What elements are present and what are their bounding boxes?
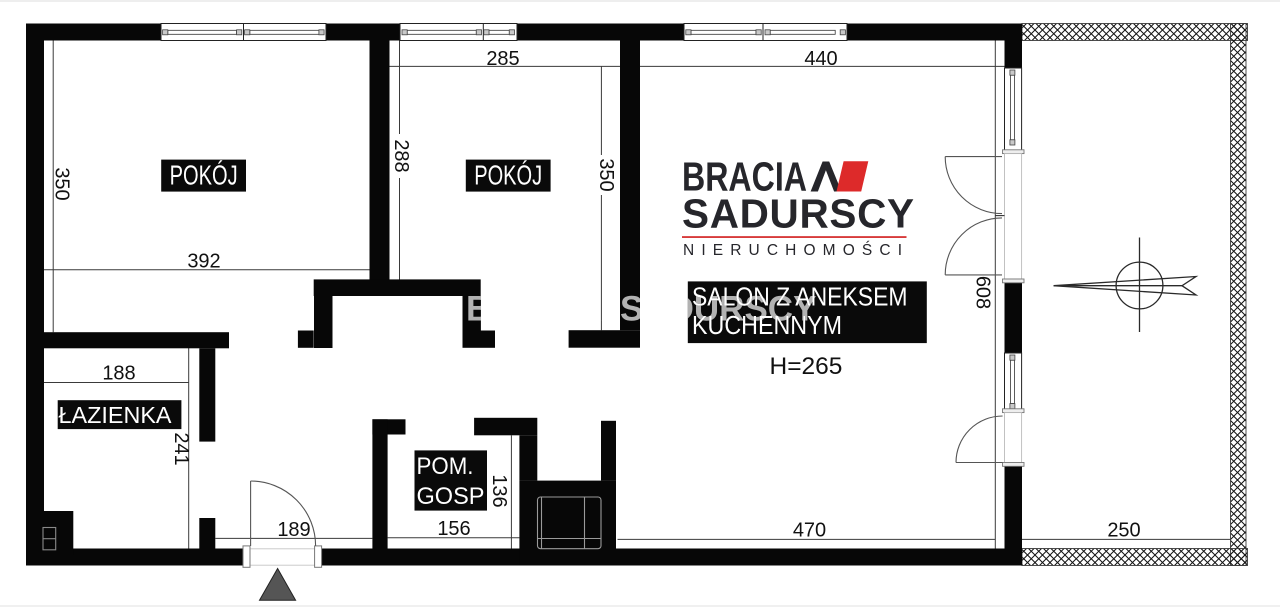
svg-text:SADURSCY: SADURSCY <box>682 191 914 237</box>
svg-text:241: 241 <box>170 432 192 465</box>
svg-text:GOSP: GOSP <box>417 483 485 510</box>
svg-text:470: 470 <box>793 520 826 542</box>
svg-text:POKÓJ: POKÓJ <box>474 160 542 191</box>
svg-text:SADURSCY: SADURSCY <box>620 290 816 329</box>
svg-text:188: 188 <box>102 363 135 385</box>
svg-text:NIERUCHOMOŚCI: NIERUCHOMOŚCI <box>683 241 902 259</box>
svg-text:POKÓJ: POKÓJ <box>170 160 238 191</box>
svg-text:288: 288 <box>390 139 412 172</box>
svg-text:608: 608 <box>972 276 994 309</box>
svg-text:156: 156 <box>437 518 470 540</box>
svg-text:250: 250 <box>1107 520 1140 542</box>
svg-text:350: 350 <box>51 167 73 200</box>
svg-text:350: 350 <box>595 158 617 191</box>
svg-text:189: 189 <box>277 519 310 541</box>
svg-text:285: 285 <box>486 48 519 70</box>
svg-text:ŁAZIENKA: ŁAZIENKA <box>59 402 172 428</box>
svg-text:H=265: H=265 <box>770 353 843 380</box>
svg-text:POM.: POM. <box>417 453 474 480</box>
svg-text:440: 440 <box>804 48 837 70</box>
svg-text:BRACIA: BRACIA <box>466 290 602 329</box>
svg-text:136: 136 <box>488 474 510 507</box>
svg-text:392: 392 <box>187 251 220 273</box>
